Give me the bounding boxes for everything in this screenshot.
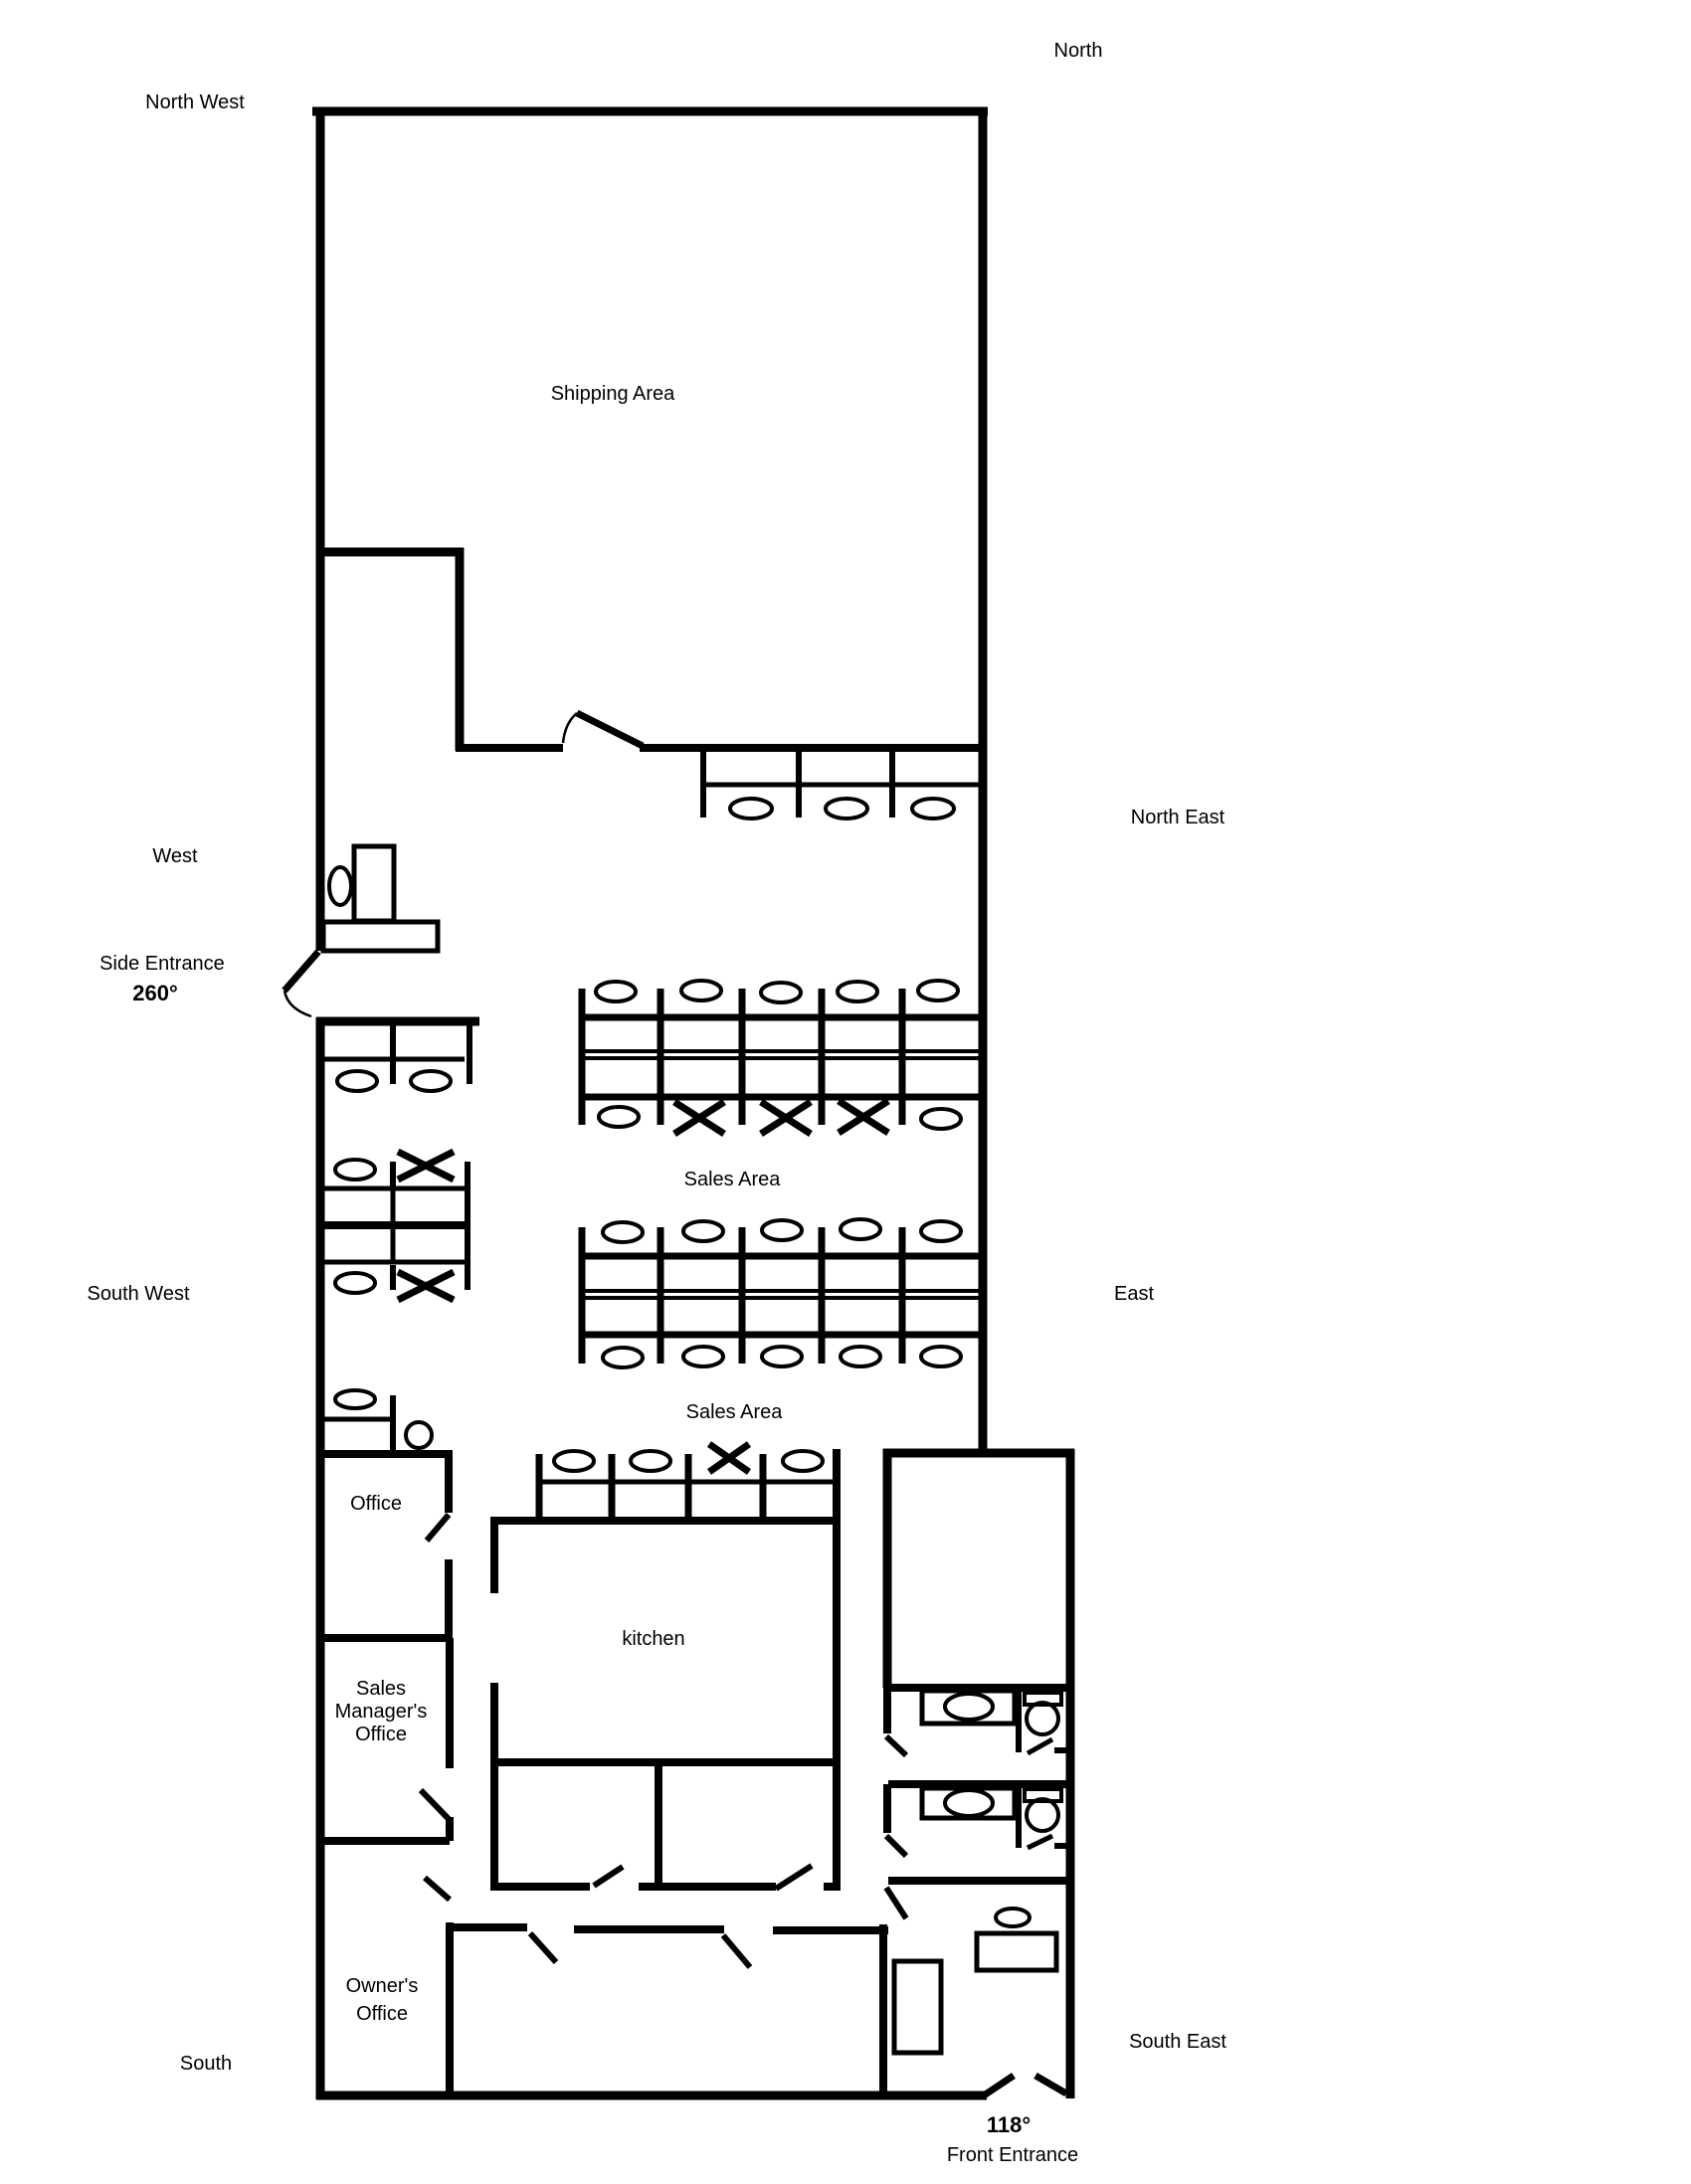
office-door-leaf	[427, 1515, 449, 1541]
cabinet	[354, 846, 394, 921]
desk	[977, 1933, 1056, 1970]
compass-south-west: South West	[87, 1283, 189, 1305]
label-owner-line1: Owner's	[346, 1975, 419, 1997]
chair-icon	[411, 1071, 451, 1091]
side-entrance-door-arc	[284, 991, 311, 1016]
chair-icon	[783, 1451, 823, 1471]
kitchen-room1-door-leaf	[594, 1867, 623, 1886]
label-sales-area-lower: Sales Area	[686, 1401, 784, 1423]
sales-cluster-lower	[580, 1219, 985, 1367]
chair-icon	[681, 981, 721, 1001]
chair-icon	[761, 983, 801, 1002]
chair-icon	[838, 982, 877, 1001]
hall-room2-door-leaf	[723, 1935, 750, 1967]
toilet2-stall-door	[1028, 1836, 1052, 1848]
reception-desk	[323, 846, 438, 951]
front-entrance-left-leaf	[984, 2076, 1014, 2095]
label-side-entrance: Side Entrance	[99, 953, 225, 975]
chair-icon	[603, 1348, 643, 1367]
se-office-furniture	[894, 1909, 1056, 2053]
chair-icon	[921, 1109, 961, 1129]
chair-icon	[762, 1347, 802, 1366]
desk	[323, 922, 438, 951]
west-desk-row	[320, 1025, 470, 1091]
chair-icon	[554, 1451, 594, 1471]
chair-icon	[996, 1909, 1030, 1926]
side-entrance-door-leaf	[284, 952, 318, 991]
bathroom2-door-leaf	[886, 1836, 906, 1856]
building-walls	[312, 107, 1074, 2099]
label-owner-line2: Office	[356, 2003, 408, 2025]
label-smo-line2: Manager's	[335, 1701, 428, 1723]
hall-room1-door-leaf	[530, 1933, 556, 1962]
label-sales-area-upper: Sales Area	[684, 1169, 782, 1190]
chair-icon	[631, 1451, 670, 1471]
compass-north-west: North West	[145, 91, 245, 113]
label-front-entrance-angle: 118°	[987, 2112, 1031, 2137]
bathroom1-door-leaf	[886, 1736, 906, 1755]
chair-icon	[337, 1071, 377, 1091]
chair-icon	[335, 1273, 375, 1293]
sales-cluster-upper	[580, 981, 985, 1134]
chair-icon	[329, 867, 351, 905]
chair-icon	[918, 981, 958, 1001]
compass-west: West	[152, 845, 198, 867]
bathroom-1	[922, 1691, 1061, 1752]
toilet-bowl-icon	[1027, 1703, 1058, 1734]
sink-basin-icon	[945, 1790, 993, 1816]
chair-icon	[599, 1107, 639, 1127]
chair-icon	[762, 1220, 802, 1240]
sink-counter	[922, 1788, 1015, 1818]
compass-south-east: South East	[1129, 2031, 1226, 2053]
cabinet	[894, 1961, 941, 2053]
chair-icon	[912, 799, 954, 819]
owner-door-leaf	[425, 1878, 450, 1900]
label-smo-line3: Office	[355, 1724, 407, 1745]
chair-icon	[683, 1221, 723, 1241]
chair-icon	[730, 799, 772, 819]
chair-icon	[335, 1390, 375, 1408]
shipping-desk-row	[703, 752, 981, 819]
label-shipping-area: Shipping Area	[551, 383, 675, 405]
west-desk-cluster	[320, 1152, 470, 1300]
toilet-bowl-icon	[1027, 1799, 1058, 1831]
chair-icon	[841, 1219, 880, 1239]
label-smo-line1: Sales	[356, 1678, 406, 1700]
chair-icon	[683, 1347, 723, 1366]
floor-plan-page: North North West North East West East So…	[0, 0, 1691, 2184]
compass-north: North	[1054, 40, 1103, 62]
label-office: Office	[350, 1493, 402, 1515]
se-office-door-leaf	[886, 1888, 906, 1918]
chair-icon	[603, 1222, 643, 1242]
chair-icon	[921, 1221, 961, 1241]
compass-north-east: North East	[1131, 807, 1225, 828]
kitchen-room2-door-leaf	[776, 1866, 812, 1889]
compass-east: East	[1114, 1283, 1154, 1305]
chair-icon	[921, 1347, 961, 1366]
chair-icon	[826, 799, 867, 819]
stool-icon	[406, 1422, 432, 1448]
label-kitchen: kitchen	[622, 1628, 684, 1650]
chair-icon	[596, 982, 636, 1001]
floor-plan-drawing: North North West North East West East So…	[0, 0, 1691, 2184]
label-side-entrance-angle: 260°	[132, 981, 178, 1005]
toilet1-stall-door	[1028, 1739, 1052, 1753]
kitchen-desk-row	[539, 1444, 835, 1521]
shipping-door-leaf	[577, 713, 643, 746]
chair-icon	[335, 1160, 375, 1180]
front-entrance-right-leaf	[1035, 2076, 1066, 2093]
smo-door-leaf	[421, 1790, 449, 1819]
chair-icon	[841, 1347, 880, 1366]
shipping-door-arc	[563, 713, 577, 743]
compass-south: South	[180, 2053, 232, 2075]
single-desk	[320, 1390, 432, 1450]
sink-basin-icon	[945, 1694, 993, 1720]
label-front-entrance: Front Entrance	[947, 2144, 1078, 2166]
